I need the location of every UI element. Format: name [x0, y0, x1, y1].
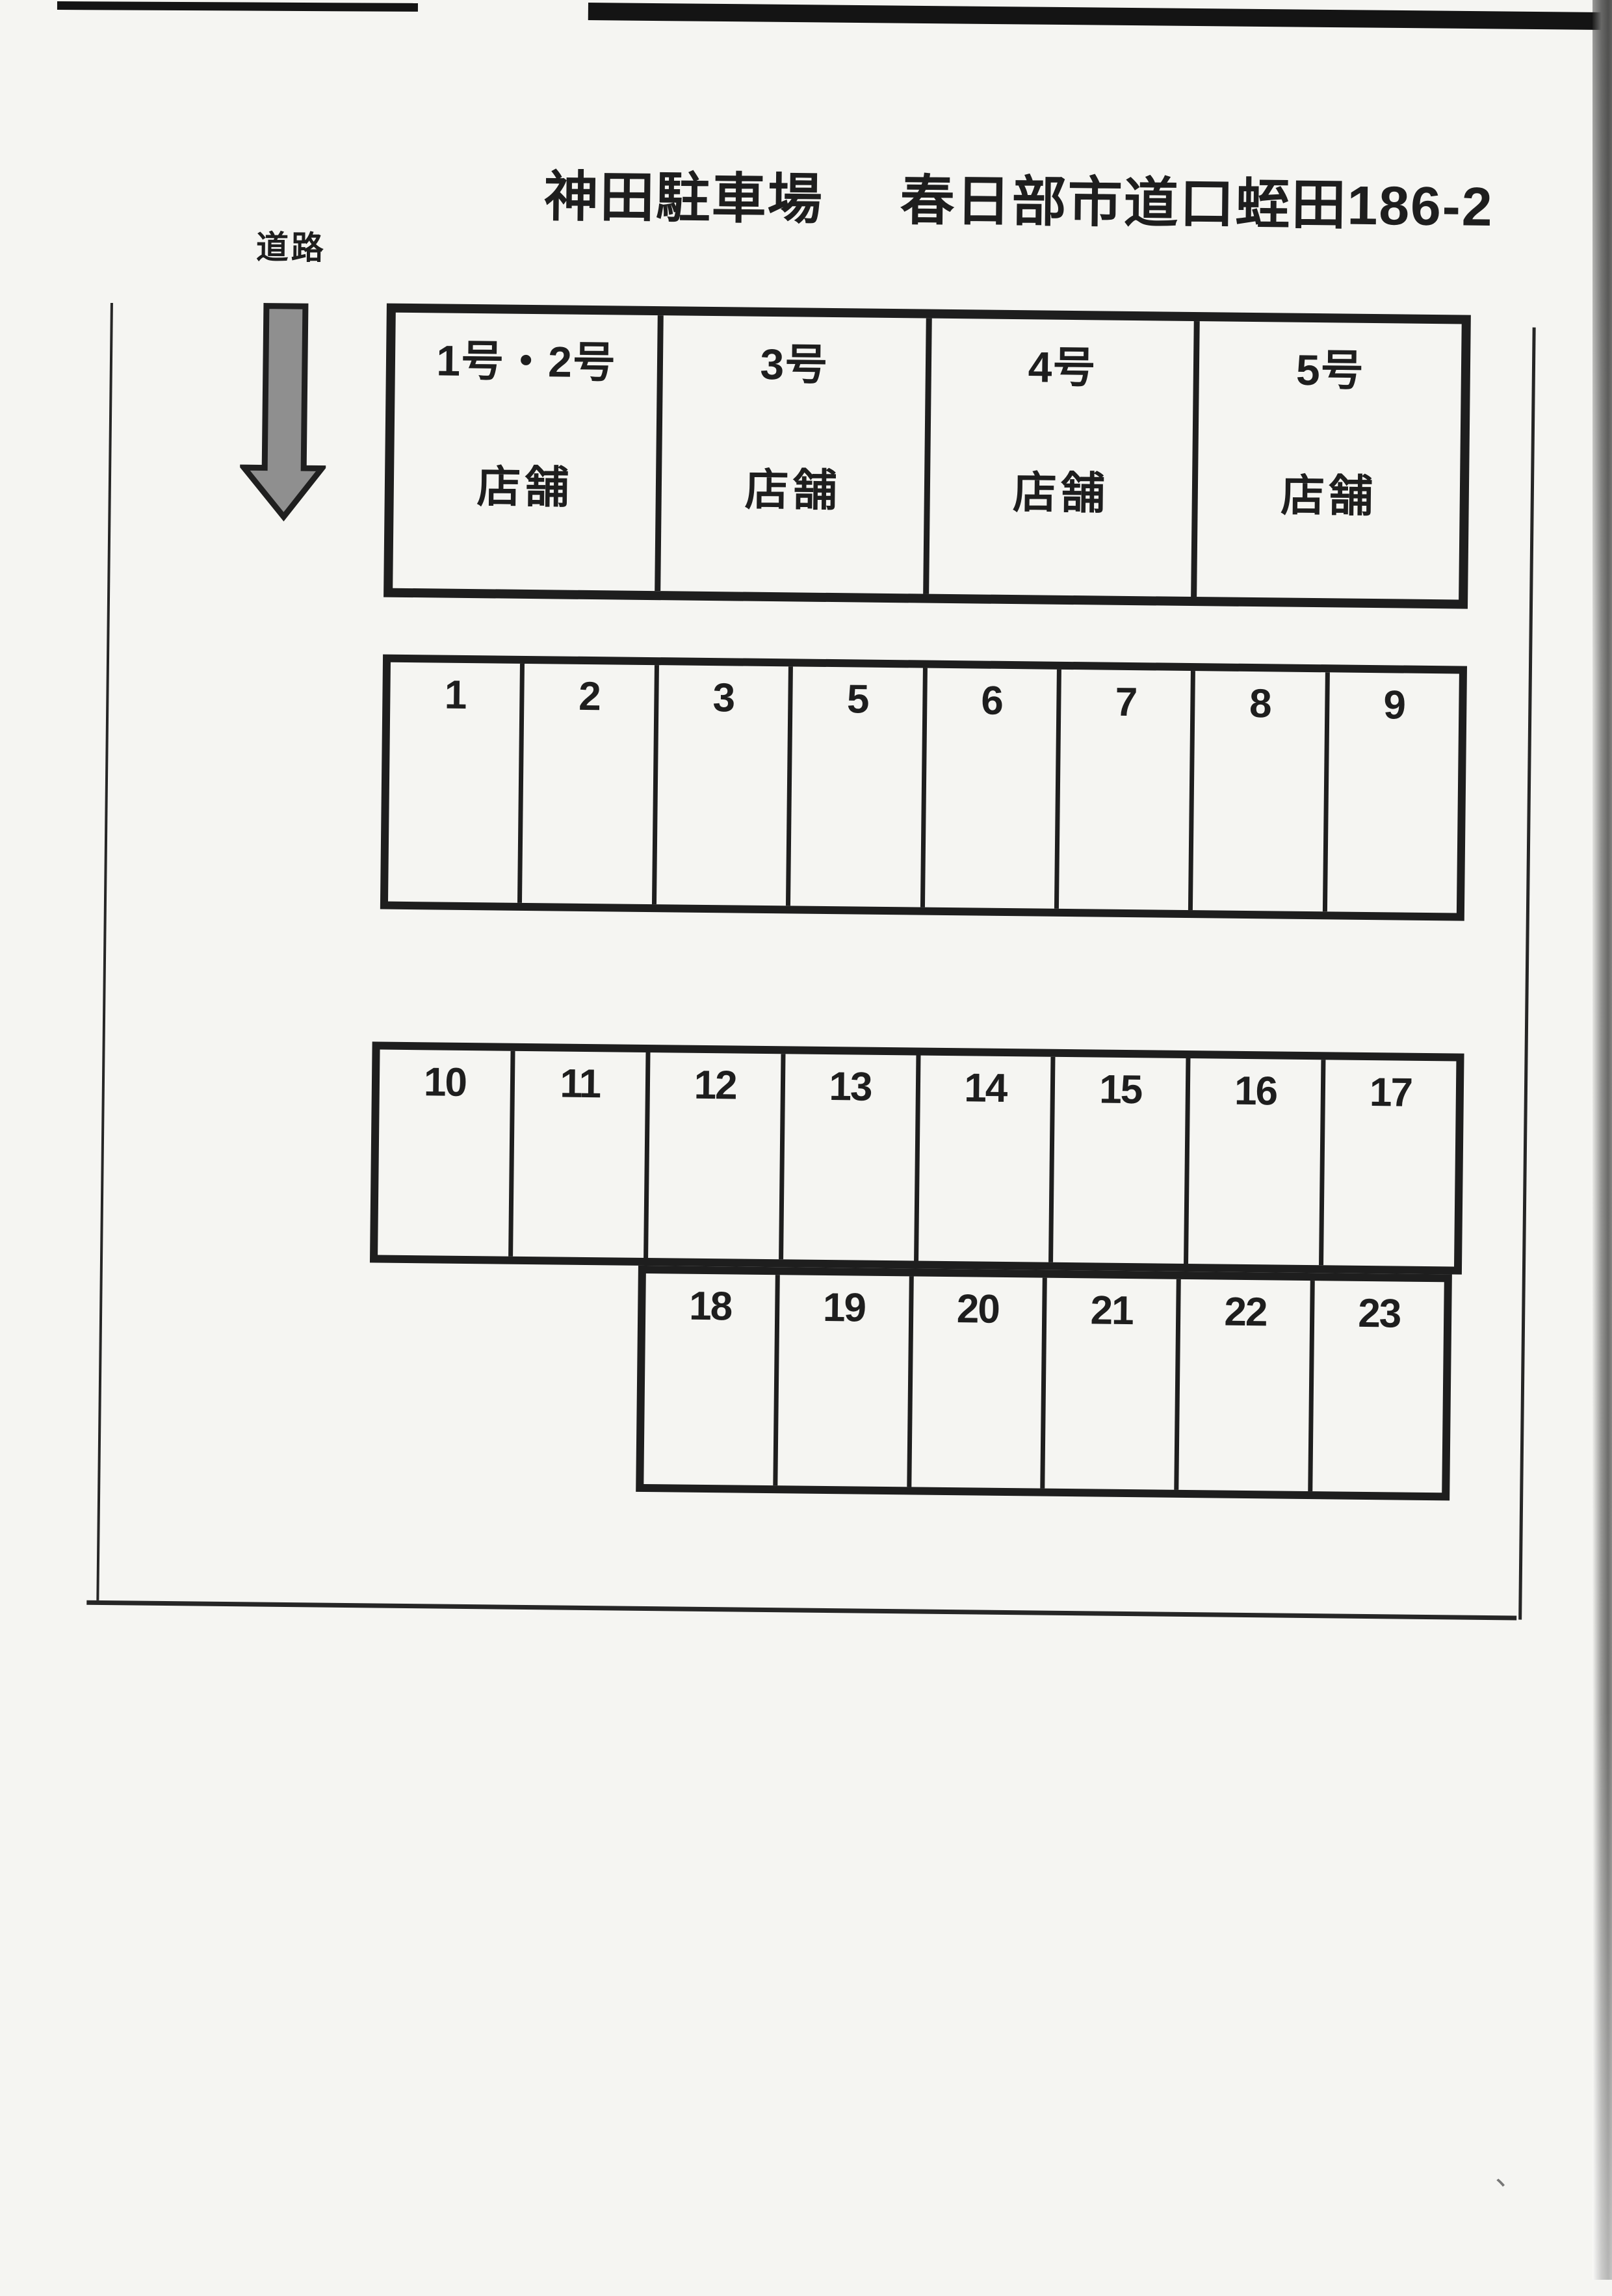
parking-space-number: 14: [964, 1065, 1007, 1112]
shop-unit-number: 3号: [663, 328, 926, 393]
parking-space-number: 23: [1358, 1290, 1401, 1337]
parking-row-18-23: 18 19 20 21 22 23: [636, 1266, 1452, 1501]
shop-unit-label: 店舗: [662, 452, 924, 519]
parking-space: 10: [378, 1050, 510, 1257]
parking-space: 14: [914, 1055, 1051, 1262]
parking-space-number: 17: [1370, 1069, 1412, 1116]
shops-block: 1号・2号 店舗 3号 店舗 4号 店舗 5号 店舗: [383, 304, 1471, 609]
parking-space: 23: [1308, 1281, 1444, 1493]
parking-space: 19: [773, 1275, 909, 1487]
parking-space: 17: [1319, 1060, 1456, 1266]
parking-space: 11: [508, 1051, 645, 1258]
shop-unit-4: 4号 店舗: [923, 319, 1194, 597]
title-address: 春日部市道口蛭田186-2: [900, 170, 1494, 237]
parking-space: 16: [1184, 1058, 1321, 1265]
shop-unit-number: 4号: [931, 332, 1193, 397]
parking-space: 3: [652, 665, 788, 906]
shop-unit-label: 店舗: [1197, 458, 1460, 525]
page-title: 神田駐車場春日部市道口蛭田186-2: [543, 153, 1494, 242]
property-boundary-right-line: [1518, 328, 1536, 1620]
parking-space: 1: [388, 662, 520, 903]
title-name: 神田駐車場: [543, 166, 824, 230]
shop-unit-1-2: 1号・2号 店舗: [393, 313, 658, 591]
parking-space: 2: [517, 664, 654, 904]
parking-space-number: 16: [1234, 1068, 1277, 1115]
parking-space: 21: [1041, 1278, 1176, 1490]
parking-space-number: 6: [981, 678, 1002, 724]
shop-unit-5: 5号 店舗: [1191, 321, 1462, 599]
parking-space-number: 7: [1115, 679, 1136, 725]
shop-unit-label: 店舗: [929, 456, 1192, 523]
property-boundary-left-line: [96, 303, 113, 1600]
parking-space: 15: [1048, 1057, 1186, 1264]
parking-space: 12: [643, 1052, 781, 1259]
road-label: 道路: [256, 221, 327, 268]
parking-space-number: 21: [1090, 1287, 1133, 1334]
parking-space-number: 22: [1224, 1289, 1267, 1336]
parking-row-1-9: 1 2 3 5 6 7 8 9: [380, 655, 1467, 921]
parking-space: 20: [907, 1276, 1043, 1488]
parking-space-number: 15: [1099, 1067, 1142, 1114]
parking-space-number: 20: [956, 1286, 999, 1333]
shop-unit-number: 5号: [1199, 334, 1461, 399]
shop-unit-3: 3号 店舗: [655, 315, 926, 594]
parking-space: 7: [1054, 670, 1191, 910]
parking-space-number: 3: [712, 675, 734, 721]
sheet-content: 神田駐車場春日部市道口蛭田186-2 道路 1号・2号 店舗 3号 店舗 4号 …: [0, 0, 1612, 2296]
scan-speck: 、: [1495, 2152, 1524, 2193]
parking-space-number: 8: [1249, 681, 1271, 727]
parking-space: 6: [920, 668, 1056, 909]
parking-space-number: 13: [829, 1063, 872, 1110]
parking-space: 22: [1175, 1279, 1310, 1491]
parking-space: 18: [643, 1273, 775, 1485]
parking-space: 8: [1188, 671, 1325, 911]
property-boundary-bottom-line: [86, 1600, 1516, 1621]
shop-unit-label: 店舗: [393, 450, 656, 517]
parking-space-number: 10: [424, 1059, 467, 1106]
parking-space-number: 1: [444, 672, 465, 718]
parking-space: 9: [1323, 672, 1459, 913]
parking-row-10-17: 10 11 12 13 14 15 16 17: [370, 1041, 1464, 1274]
parking-space: 13: [779, 1054, 916, 1260]
parking-space-number: 18: [689, 1283, 732, 1330]
parking-space-number: 19: [823, 1285, 866, 1331]
parking-space-number: 11: [560, 1061, 600, 1108]
parking-space-number: 5: [847, 676, 868, 722]
parking-space-number: 9: [1383, 682, 1405, 728]
shop-unit-number: 1号・2号: [395, 326, 658, 391]
parking-space-number: 12: [694, 1062, 736, 1109]
road-direction-down-arrow-icon: [239, 302, 328, 523]
parking-space: 5: [786, 666, 922, 907]
parking-space-number: 2: [578, 673, 600, 720]
